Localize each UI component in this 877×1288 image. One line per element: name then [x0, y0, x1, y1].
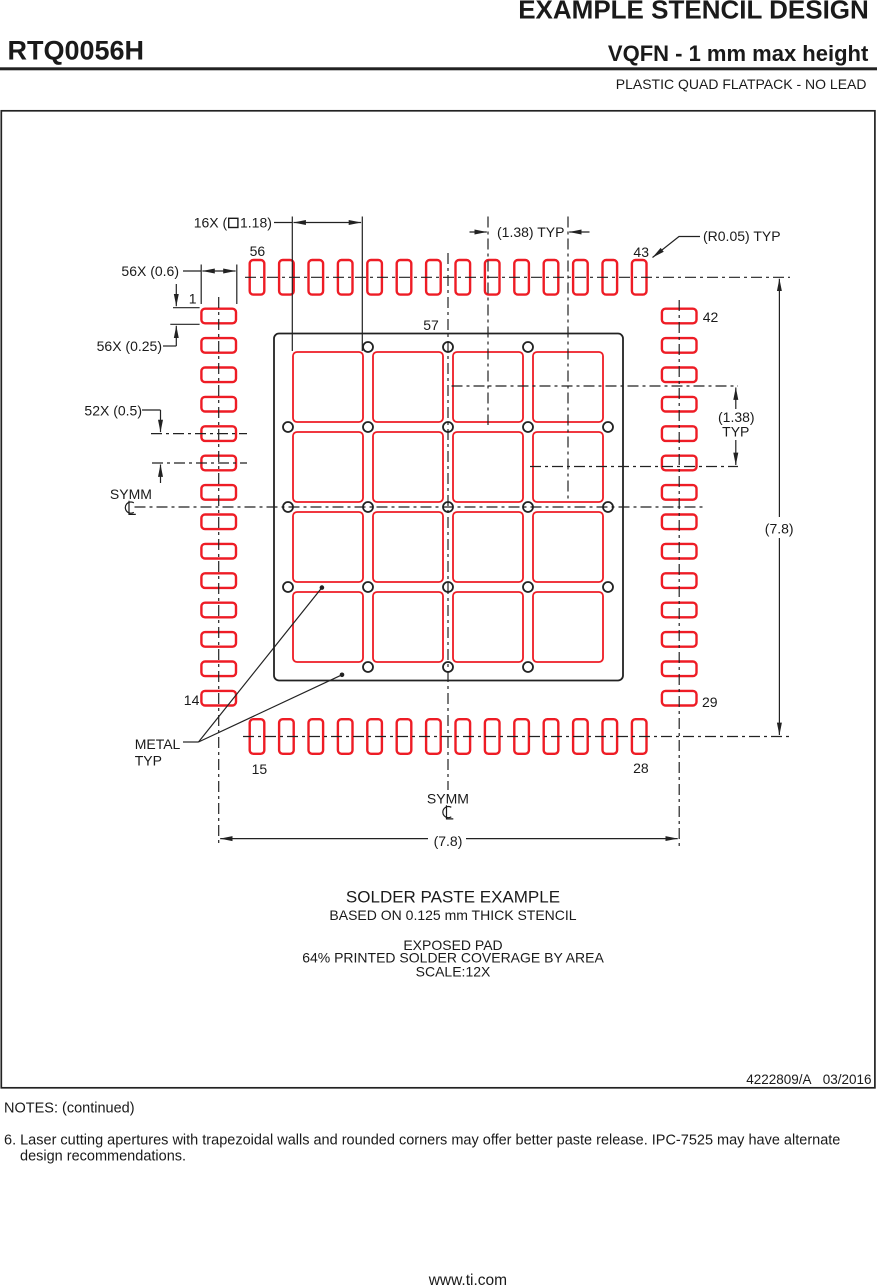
svg-text:1: 1: [189, 290, 197, 306]
svg-text:6. Laser cutting apertures wit: 6. Laser cutting apertures with trapezoi…: [4, 1132, 840, 1148]
svg-text:43: 43: [633, 244, 649, 260]
svg-text:57: 57: [423, 317, 439, 333]
svg-text:SOLDER PASTE EXAMPLE: SOLDER PASTE EXAMPLE: [346, 888, 560, 907]
svg-text:NOTES: (continued): NOTES: (continued): [4, 1101, 135, 1117]
svg-text:SYMM: SYMM: [110, 486, 152, 502]
svg-text:03/2016: 03/2016: [823, 1072, 872, 1087]
svg-text:BASED ON 0.125 mm THICK STENCI: BASED ON 0.125 mm THICK STENCIL: [329, 907, 576, 923]
svg-text:VQFN - 1 mm max height: VQFN - 1 mm max height: [608, 41, 869, 66]
svg-text:METAL: METAL: [135, 736, 181, 752]
svg-text:29: 29: [702, 694, 718, 710]
svg-text:EXAMPLE STENCIL DESIGN: EXAMPLE STENCIL DESIGN: [518, 0, 869, 25]
svg-text:56: 56: [250, 243, 266, 259]
svg-text:RTQ0056H: RTQ0056H: [8, 36, 145, 66]
svg-text:(7.8): (7.8): [434, 833, 463, 849]
svg-text:TYP: TYP: [135, 752, 162, 768]
svg-text:www.ti.com: www.ti.com: [428, 1272, 507, 1288]
svg-text:4222809/A: 4222809/A: [746, 1072, 811, 1087]
svg-text:(R0.05) TYP: (R0.05) TYP: [703, 228, 781, 244]
svg-text:(7.8): (7.8): [765, 521, 794, 537]
svg-text:42: 42: [703, 309, 719, 325]
svg-text:16X (: 16X (: [194, 214, 228, 230]
svg-text:56X (0.6): 56X (0.6): [121, 263, 179, 279]
svg-text:56X (0.25): 56X (0.25): [97, 338, 162, 354]
svg-text:TYP: TYP: [722, 423, 749, 439]
svg-text:design recommendations.: design recommendations.: [20, 1148, 186, 1164]
svg-text:SCALE:12X: SCALE:12X: [416, 964, 491, 980]
svg-text:15: 15: [252, 761, 268, 777]
svg-text:(1.38) TYP: (1.38) TYP: [497, 224, 564, 240]
svg-text:PLASTIC QUAD FLATPACK - NO LEA: PLASTIC QUAD FLATPACK - NO LEAD: [616, 76, 867, 92]
svg-text:28: 28: [633, 760, 649, 776]
svg-text:1.18): 1.18): [240, 214, 272, 230]
svg-text:52X (0.5): 52X (0.5): [84, 402, 142, 418]
svg-text:SYMM: SYMM: [427, 791, 469, 807]
svg-text:14: 14: [184, 692, 200, 708]
